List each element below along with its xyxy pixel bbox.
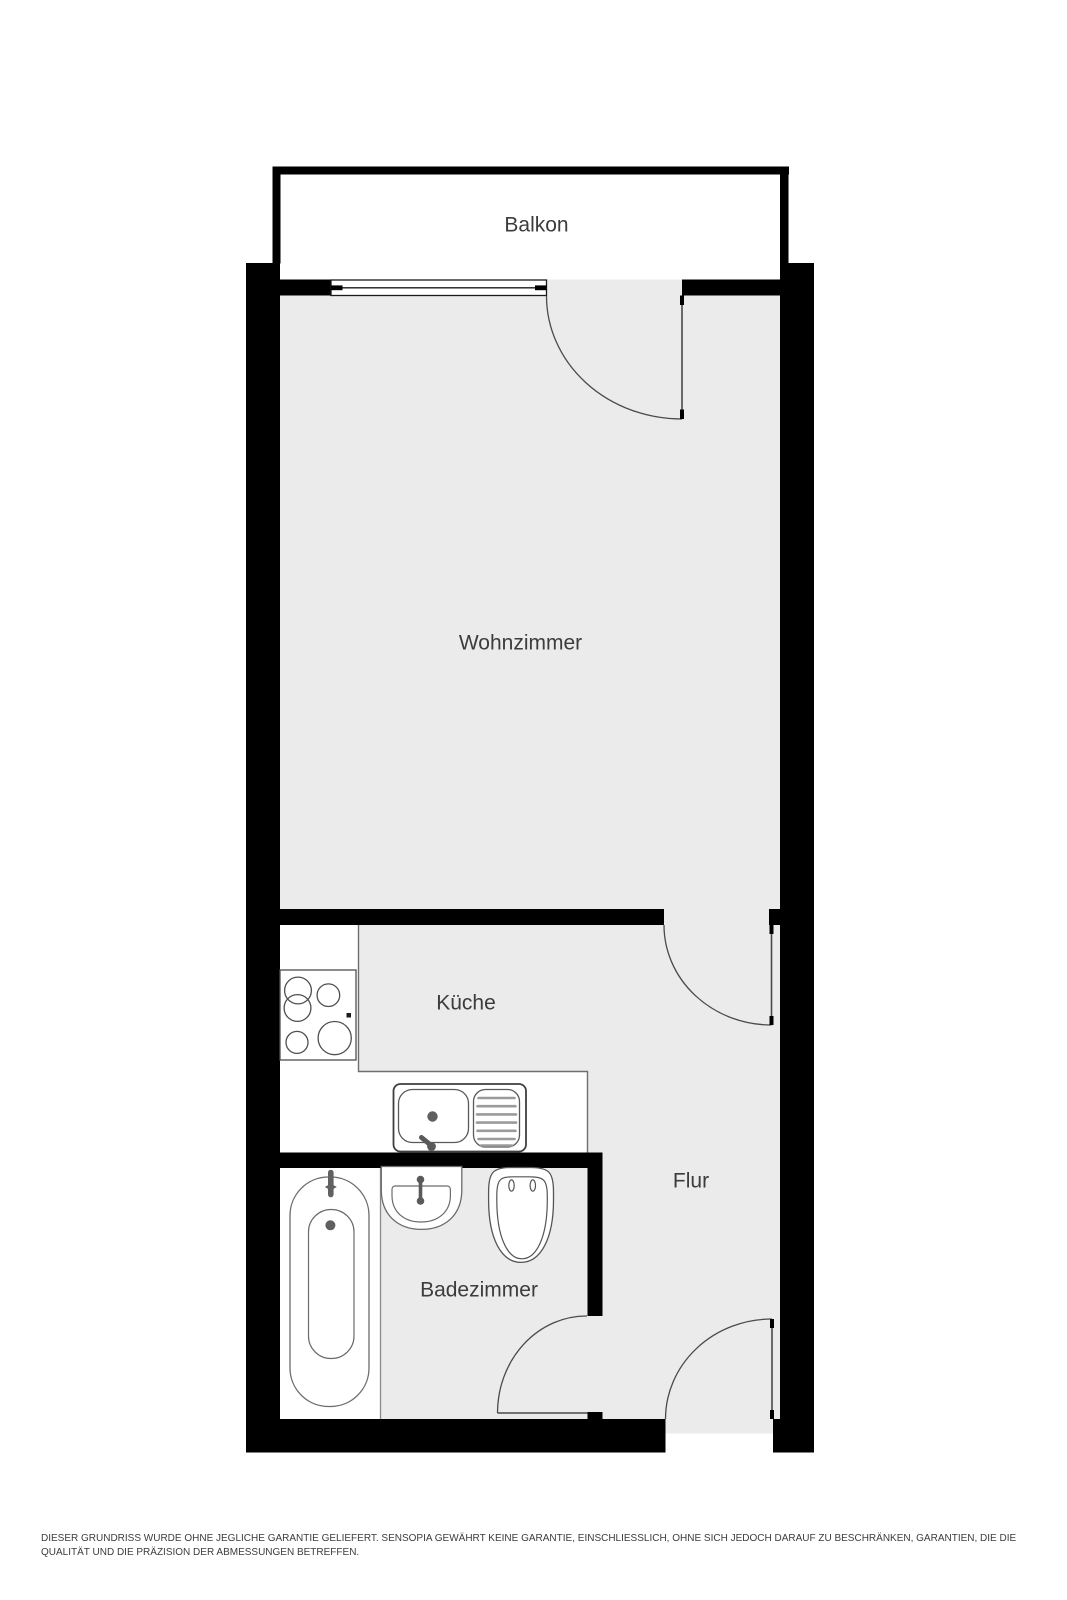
svg-text:Flur: Flur bbox=[673, 1170, 709, 1193]
svg-text:Küche: Küche bbox=[436, 992, 496, 1015]
svg-text:DIESER GRUNDRISS WURDE OHNE JE: DIESER GRUNDRISS WURDE OHNE JEGLICHE GAR… bbox=[41, 1532, 1017, 1544]
svg-text:Balkon: Balkon bbox=[504, 214, 568, 237]
svg-text:Wohnzimmer: Wohnzimmer bbox=[459, 632, 582, 655]
svg-text:QUALITÄT UND DIE PRÄZISION DER: QUALITÄT UND DIE PRÄZISION DER ABMESSUNG… bbox=[41, 1546, 359, 1558]
svg-text:Badezimmer: Badezimmer bbox=[420, 1279, 538, 1302]
